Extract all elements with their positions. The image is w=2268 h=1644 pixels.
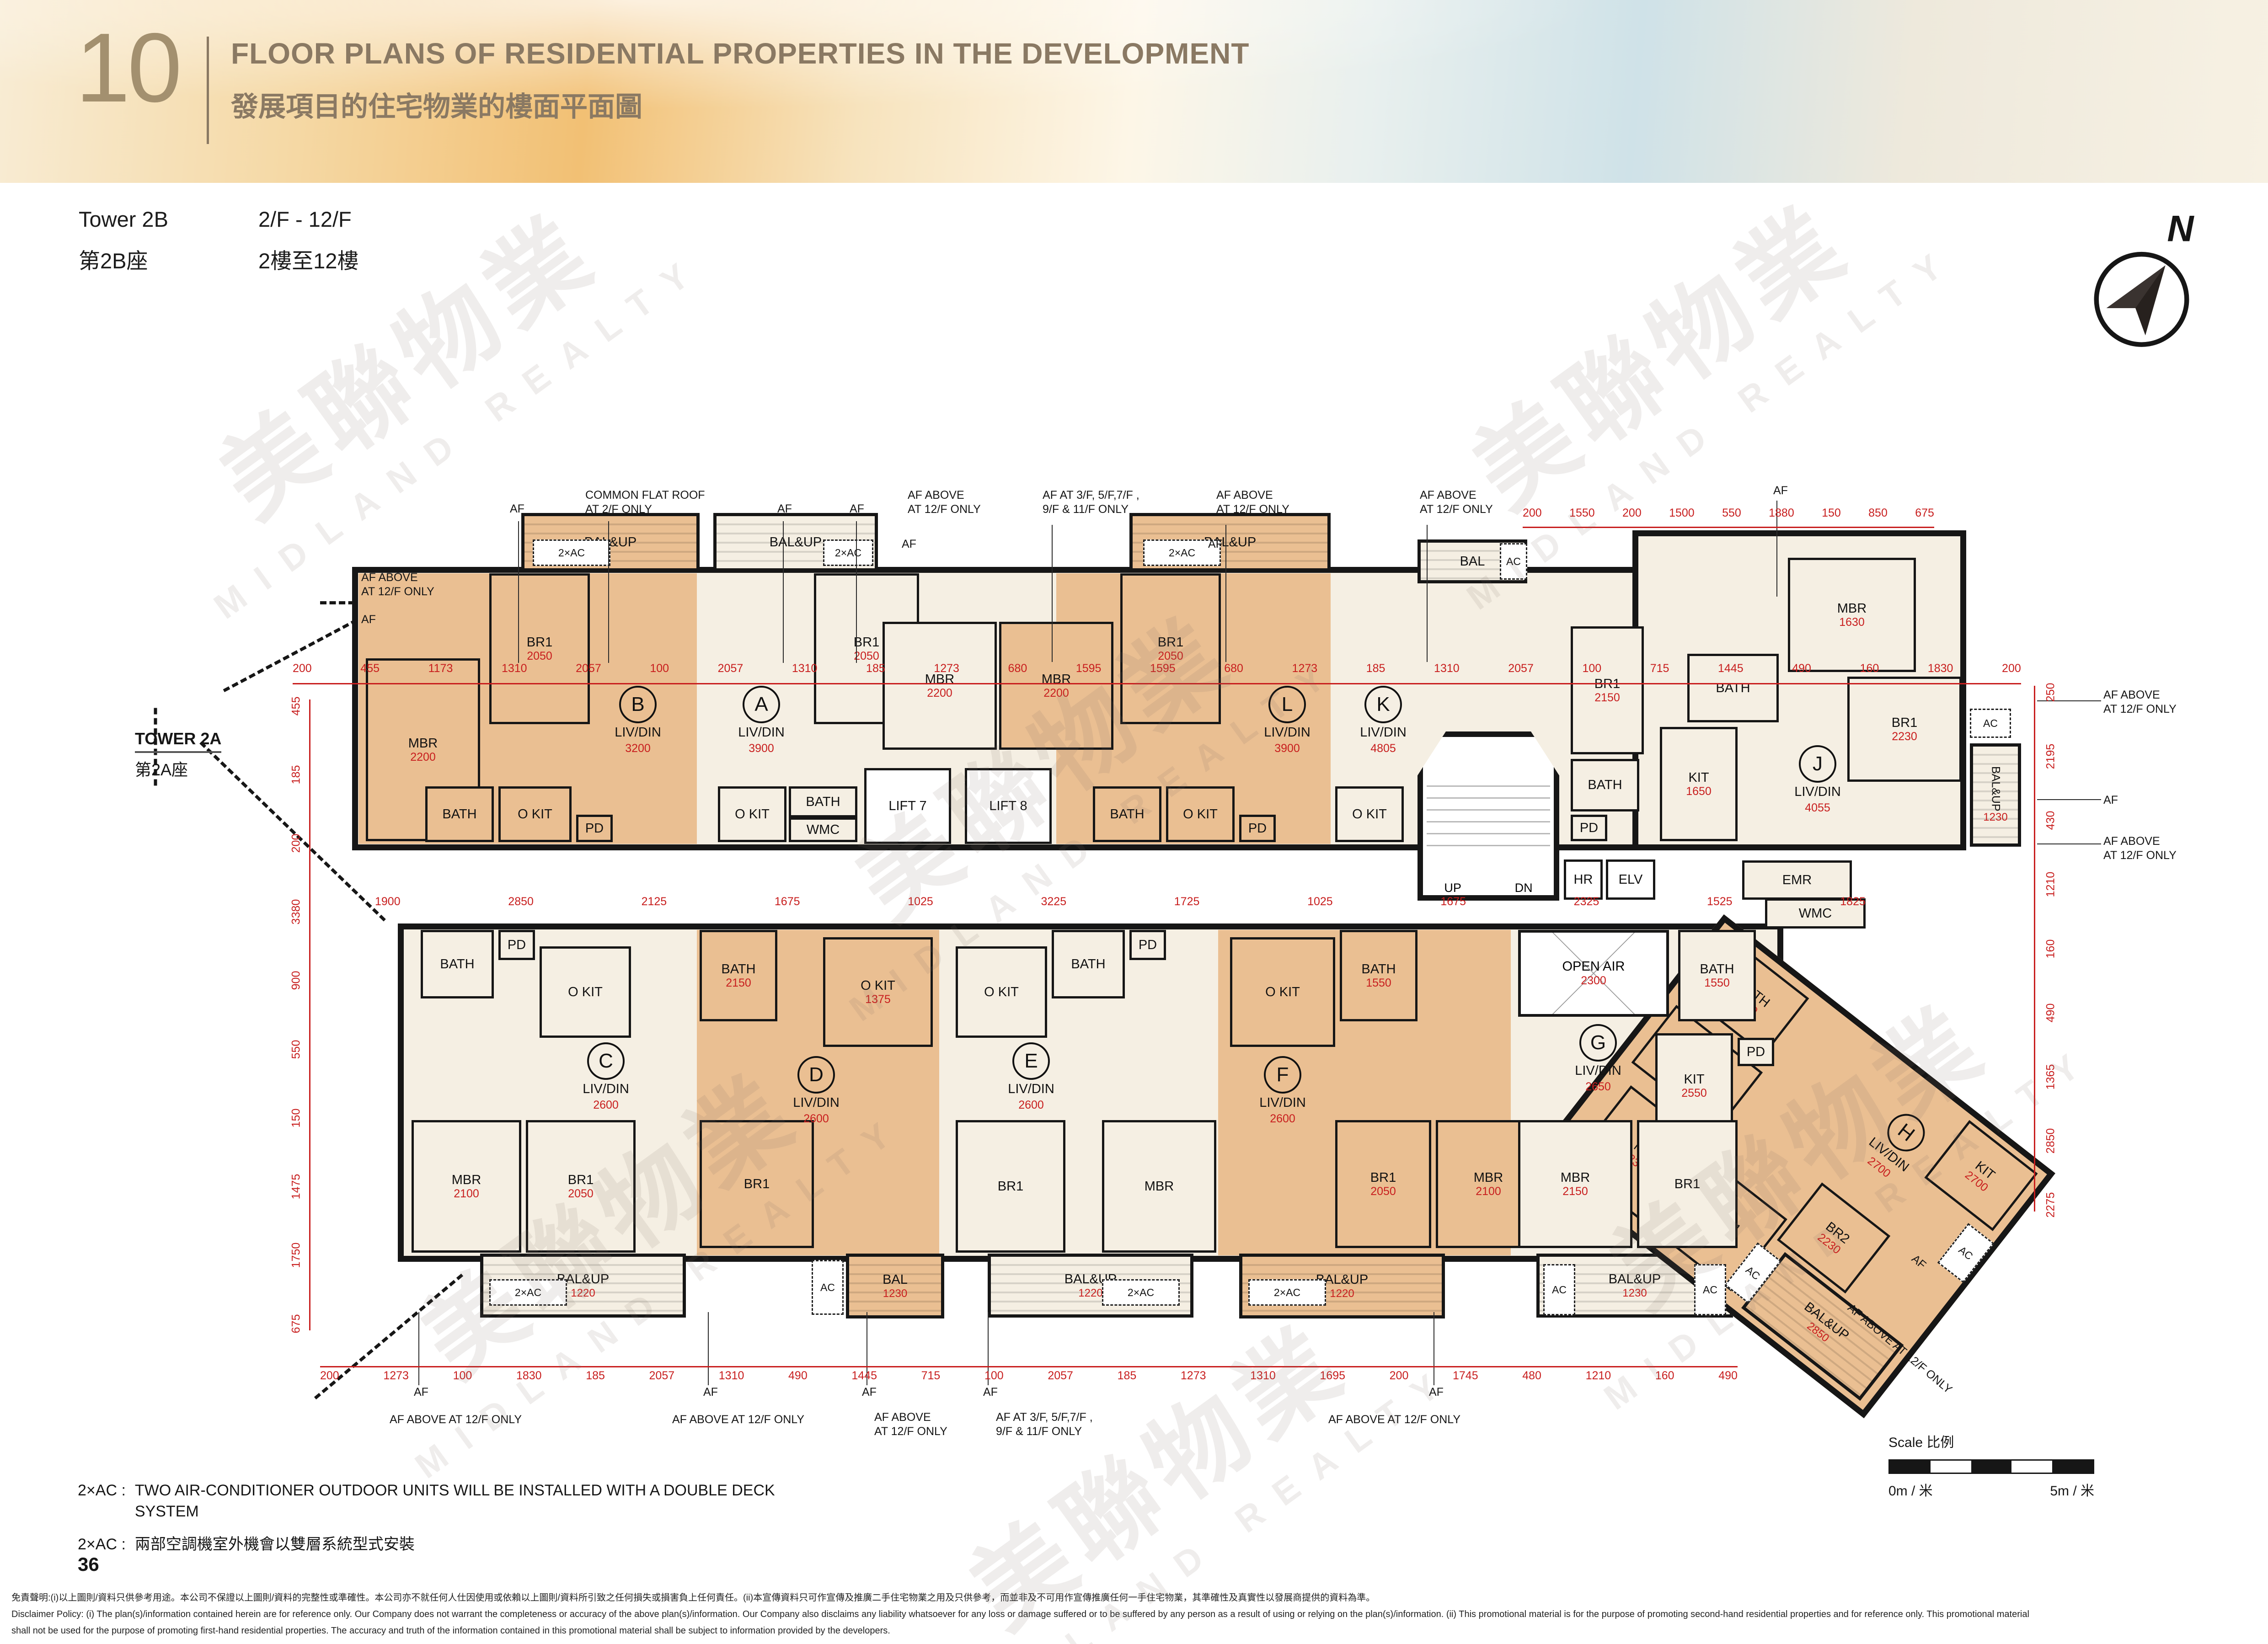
dimension-value: 200 [2002,662,2021,675]
dimension-strip-corridor: 1900285021251675102532251725102516752325… [375,895,1866,908]
dimension-value: 1310 [719,1369,744,1382]
dimension-value: 1475 [290,1174,303,1199]
dimension-line-top [293,683,2021,684]
annotation-af: AF [862,1385,877,1399]
room-e-br1: BR1 [956,1120,1065,1253]
dimension-value: 200 [320,1369,339,1382]
dimension-value: 1595 [1076,662,1102,675]
dimension-value: 1445 [1718,662,1744,675]
open-air-area: OPEN AIR2300 [1518,930,1669,1017]
dimension-value: 1310 [792,662,818,675]
note-item: 2×AC : 兩部空調機室外機會以雙層系統型式安裝 [78,1534,791,1555]
annotation-af: AF [1773,484,1788,498]
dimension-value: 1310 [1434,662,1460,675]
dimension-line-bottom [320,1366,1738,1367]
room-a-mbr: MBR2200 [883,622,997,750]
room-e-bath: BATH [1052,930,1125,998]
room-e-pd: PD [1129,930,1166,960]
adjacent-tower-en: TOWER 2A [135,729,221,753]
annotation-af-above: AF ABOVE AT 12/F ONLY [390,1413,522,1427]
dimension-value: 490 [2044,1003,2058,1022]
lift-7: LIFT 7 [864,768,951,844]
dimension-value: 1273 [934,662,959,675]
dimension-value: 2057 [576,662,601,675]
annotation-af-above: AF ABOVE AT 12/F ONLY [1216,488,1289,517]
dimension-value: 900 [290,971,303,990]
north-compass-icon: N [2085,210,2204,363]
stair-down-label: DN [1515,881,1533,895]
room-j-kit: KIT1650 [1660,727,1738,841]
dimension-value: 2325 [1574,895,1599,908]
unit-k: KLIV/DIN4805 [1344,686,1422,755]
ac-box: 2×AC [1102,1279,1180,1306]
annotation-af: AF [361,613,376,627]
dimension-value: 1675 [775,895,800,908]
room-j-mbr: MBR1630 [1788,558,1916,672]
ac-box: AC [1500,543,1527,580]
ac-box: 2×AC [533,539,610,566]
ac-box: 2×AC [823,539,873,566]
tower-name-zh: 第2B座 [79,243,148,275]
leader-line [1052,525,1053,662]
dimension-value: 480 [1522,1369,1541,1382]
dimension-value: 1830 [1928,662,1953,675]
room-k-br1: BR12150 [1571,626,1644,754]
room-a-bath: BATH [789,786,857,817]
annotation-af-levels: AF AT 3/F, 5/F,7/F , 9/F & 11/F ONLY [1043,488,1139,517]
dimension-value: 455 [290,697,303,716]
dimension-value: 2057 [718,662,744,675]
unit-d: DLIV/DIN2600 [777,1056,855,1126]
room-b-br1: BR12050 [489,573,590,724]
dimension-value: 1210 [1586,1369,1611,1382]
dimension-value: 1365 [2044,1064,2058,1089]
leader-line [783,521,784,663]
dimension-value: 1273 [1292,662,1318,675]
dimension-value: 185 [866,662,885,675]
unit-e: ELIV/DIN2600 [992,1042,1070,1112]
dimension-strip-top: 2004551173131020571002057131018512736801… [293,662,2021,675]
dimension-value: 1595 [1150,662,1176,675]
floor-range-zh: 2樓至12樓 [258,243,358,275]
room-j-br1: BR12230 [1847,677,1962,782]
dimension-value: 2125 [642,895,667,908]
adjacent-tower-label: TOWER 2A 第2A座 [135,729,221,780]
dimension-value: 550 [290,1040,303,1059]
balcony-unit-j: BAL&UP1230 [1970,743,2021,847]
room-k-pd: PD [1571,815,1607,841]
dimension-value: 185 [1366,662,1385,675]
dimension-value: 200 [1390,1369,1409,1382]
room-d-br1: BR1 [700,1120,814,1248]
annotation-af: AF [510,502,524,516]
dimension-strip-right: 25021954301210160490136528502275 [2037,686,2065,1212]
page-title-zh: 發展項目的住宅物業的樓面平面圖 [231,85,642,124]
adjacent-tower-zh: 第2A座 [135,757,221,780]
annotation-af-above: AF ABOVE AT 12/F ONLY [1420,488,1493,517]
dimension-value: 490 [1792,662,1811,675]
dimension-value: 490 [1718,1369,1738,1382]
dimension-strip-top-right: 200155020015005501880150850675 [1523,507,1934,520]
annotation-af: AF [777,502,792,516]
dimension-value: 3380 [290,899,303,925]
leader-line [1427,525,1428,662]
dimension-value: 680 [1008,662,1027,675]
room-a-wmc: WMC [789,817,857,842]
scale-bar: Scale 比例 0m / 米 5m / 米 [1888,1431,2094,1500]
section-number: 10 [75,18,179,117]
room-elv: ELV [1606,859,1655,900]
note-prefix: 2×AC : [78,1534,126,1555]
annotation-af-above: AF ABOVE AT 12/F ONLY [2103,834,2177,863]
annotation-af-above: AF ABOVE AT 12/F ONLY [2103,688,2177,717]
dimension-value: 675 [1915,507,1934,520]
dimension-value: 185 [586,1369,605,1382]
dimension-value: 1210 [2044,872,2058,897]
room-c-bath: BATH [421,930,494,998]
room-g-br1: BR1 [1637,1120,1738,1248]
annotation-af-above: AF ABOVE AT 12/F ONLY [1328,1413,1460,1427]
staircase: UP DN [1417,731,1559,901]
room-l-br1: BR12050 [1120,573,1221,724]
dimension-value: 1310 [1250,1369,1276,1382]
room-c-br1: BR12050 [526,1120,636,1253]
unit-b: BLIV/DIN3200 [599,686,677,755]
dimension-value: 2275 [2044,1192,2058,1218]
dimension-value: 715 [921,1369,941,1382]
dimension-value: 1750 [290,1243,303,1268]
annotation-af: AF [1208,537,1223,551]
room-emr: EMR [1742,860,1852,900]
dimension-value: 200 [1622,507,1642,520]
scale-bar-graphic [1888,1459,2094,1474]
dimension-value: 200 [290,834,303,853]
dimension-value: 1550 [1569,507,1595,520]
unit-l: LLIV/DIN3900 [1248,686,1326,755]
room-d-bath: BATH2150 [700,930,777,1021]
dimension-value: 150 [1822,507,1841,520]
dimension-value: 455 [360,662,380,675]
dimension-value: 2195 [2044,744,2058,769]
brochure-page: 10 FLOOR PLANS OF RESIDENTIAL PROPERTIES… [0,0,2268,1644]
dimension-line-right [2034,686,2035,1212]
ac-box: 2×AC [1248,1279,1326,1306]
ac-box: 2×AC [489,1279,567,1306]
unit-a: ALIV/DIN3900 [722,686,800,755]
room-g-mbr: MBR2150 [1518,1120,1632,1248]
room-c-okit: O KIT [540,946,631,1038]
note-text: 兩部空調機室外機會以雙層系統型式安裝 [135,1534,415,1555]
dimension-value: 1273 [383,1369,409,1382]
dimension-value: 1525 [1707,895,1733,908]
page-number: 36 [78,1553,99,1575]
unit-j: JLIV/DIN4055 [1779,745,1856,815]
disclaimer-en-2: shall not be used for the purpose of pro… [11,1624,2257,1638]
notes-block: 2×AC : TWO AIR-CONDITIONER OUTDOOR UNITS… [78,1480,791,1567]
room-c-pd: PD [498,930,535,960]
room-g-bath: BATH1550 [1678,930,1756,1021]
dimension-value: 1310 [502,662,527,675]
leader-line [518,521,519,663]
annotation-af: AF [850,502,864,516]
scale-start: 0m / 米 [1888,1479,1933,1500]
annotation-af: AF [983,1385,998,1399]
annotation-af-above: AF ABOVE AT 12/F ONLY [874,1410,947,1439]
dimension-value: 2057 [1048,1369,1073,1382]
disclaimer-en-1: Disclaimer Policy: (i) The plan(s)/infor… [11,1607,2257,1622]
scale-label: Scale 比例 [1888,1431,2094,1451]
dimension-value: 1695 [1320,1369,1345,1382]
room-g-pd: PD [1738,1038,1774,1066]
dimension-value: 1745 [1453,1369,1478,1382]
room-f-bath: BATH1550 [1340,930,1417,1021]
room-f-okit: O KIT [1230,937,1335,1047]
dimension-strip-left: 455185200338090055015014751750675 [283,699,310,1330]
dimension-value: 250 [2044,683,2058,702]
dimension-value: 160 [2044,939,2058,958]
annotation-af-above: AF ABOVE AT 12/F ONLY [908,488,981,517]
dimension-value: 2057 [1508,662,1534,675]
dimension-value: 1025 [1307,895,1333,908]
room-f-br1: BR12050 [1335,1120,1431,1248]
annotation-af-above: AF ABOVE AT 12/F ONLY [672,1413,804,1427]
floor-plan: BAL&UP 2×AC BAL&UP 2×AC BAL&UP 2×AC BAL … [283,471,2039,1385]
room-e-okit: O KIT [956,946,1047,1038]
room-b-bath: BATH [425,786,494,842]
page-title: FLOOR PLANS OF RESIDENTIAL PROPERTIES IN… [231,37,1249,70]
ac-box: AC [812,1260,844,1315]
dimension-value: 1445 [851,1369,877,1382]
annotation-af-above: AF ABOVE AT 12/F ONLY [361,571,434,599]
dimension-value: 1725 [1174,895,1200,908]
north-label: N [2167,210,2194,250]
stair-treads [1427,785,1550,856]
dimension-value: 1675 [1440,895,1466,908]
dimension-value: 490 [788,1369,808,1382]
leader-line [608,521,609,663]
dimension-value: 1825 [1840,895,1866,908]
dimension-value: 100 [1582,662,1601,675]
dimension-value: 160 [1860,662,1879,675]
dimension-value: 100 [650,662,669,675]
ac-box: AC [1543,1264,1575,1315]
dimension-line-top-right [1523,527,1934,528]
note-prefix: 2×AC : [78,1480,126,1522]
room-d-okit: O KIT1375 [823,937,933,1047]
dimension-strip-bottom: 2001273100183018520571310490144571510020… [320,1369,1738,1382]
dimension-value: 3225 [1041,895,1066,908]
dimension-value: 100 [453,1369,472,1382]
room-a-okit: O KIT [718,786,786,842]
dimension-value: 2850 [2044,1128,2058,1154]
dimension-value: 100 [984,1369,1004,1382]
tower-name-en: Tower 2B [79,207,168,232]
annotation-af: AF [2103,793,2118,807]
dimension-value: 150 [290,1108,303,1127]
room-l-pd: PD [1239,815,1276,842]
dimension-value: 675 [290,1314,303,1334]
room-hr: HR [1564,859,1603,900]
dimension-value: 1500 [1669,507,1695,520]
annotation-af: AF [902,537,916,551]
room-l-mbr: MBR2200 [999,622,1113,750]
room-b-okit: O KIT [498,786,572,842]
dimension-value: 200 [293,662,312,675]
annotation-af: AF [414,1385,428,1399]
room-b-pd: PD [576,815,613,842]
room-c-mbr: MBR2100 [412,1120,521,1253]
dimension-value: 185 [290,765,303,785]
dimension-value: 715 [1650,662,1669,675]
annotation-af-levels: AF AT 3/F, 5/F,7/F , 9/F & 11/F ONLY [996,1410,1093,1439]
dimension-value: 680 [1224,662,1243,675]
balcony-label: BAL&UP [770,535,822,550]
ac-box: AC [1694,1264,1726,1315]
annotation-af: AF [1429,1385,1444,1399]
dimension-value: 2850 [508,895,534,908]
balcony-label: BAL [1460,554,1485,569]
room-l-okit: O KIT [1166,786,1235,842]
note-text: TWO AIR-CONDITIONER OUTDOOR UNITS WILL B… [135,1480,791,1522]
dimension-value: 430 [2044,811,2058,830]
dimension-value: 1830 [516,1369,542,1382]
balcony-unit-d: BAL1230 [846,1254,944,1318]
dimension-value: 200 [1523,507,1542,520]
lift-8: LIFT 8 [965,768,1052,844]
ac-box: AC [1970,709,2011,738]
leader-line [1225,525,1226,662]
unit-f: FLIV/DIN2600 [1244,1056,1321,1126]
note-item: 2×AC : TWO AIR-CONDITIONER OUTDOOR UNITS… [78,1480,791,1522]
floor-range-en: 2/F - 12/F [258,207,352,232]
dimension-value: 160 [1655,1369,1674,1382]
annotation-af: AF [703,1385,718,1399]
dimension-value: 1173 [428,662,453,675]
room-l-bath: BATH [1093,786,1161,842]
unit-c: CLIV/DIN2600 [567,1042,645,1112]
scale-end: 5m / 米 [2050,1479,2094,1500]
room-e-mbr: MBR [1102,1120,1216,1253]
dimension-value: 1880 [1769,507,1794,520]
disclaimer-zh: 免責聲明:(i)以上圖則/資料只供參考用途。本公司不保證以上圖則/資料的完整性或… [11,1591,2257,1605]
dimension-value: 185 [1118,1369,1137,1382]
dimension-value: 550 [1722,507,1741,520]
annotation-common-flat-roof: COMMON FLAT ROOF AT 2/F ONLY [585,488,705,517]
dimension-value: 2057 [649,1369,675,1382]
room-k-okit: O KIT [1335,786,1404,842]
stair-up-label: UP [1444,881,1461,895]
dimension-value: 1900 [375,895,401,908]
dimension-value: 1273 [1181,1369,1206,1382]
unit-g: GLIV/DIN2650 [1559,1024,1637,1094]
dimension-value: 1025 [908,895,933,908]
leader-line [856,521,857,663]
room-k-bath: BATH [1571,759,1639,811]
header-divider [207,37,209,144]
dimension-value: 850 [1868,507,1888,520]
page-header: 10 FLOOR PLANS OF RESIDENTIAL PROPERTIES… [0,0,2268,183]
ac-box: AC [1937,1223,1994,1283]
